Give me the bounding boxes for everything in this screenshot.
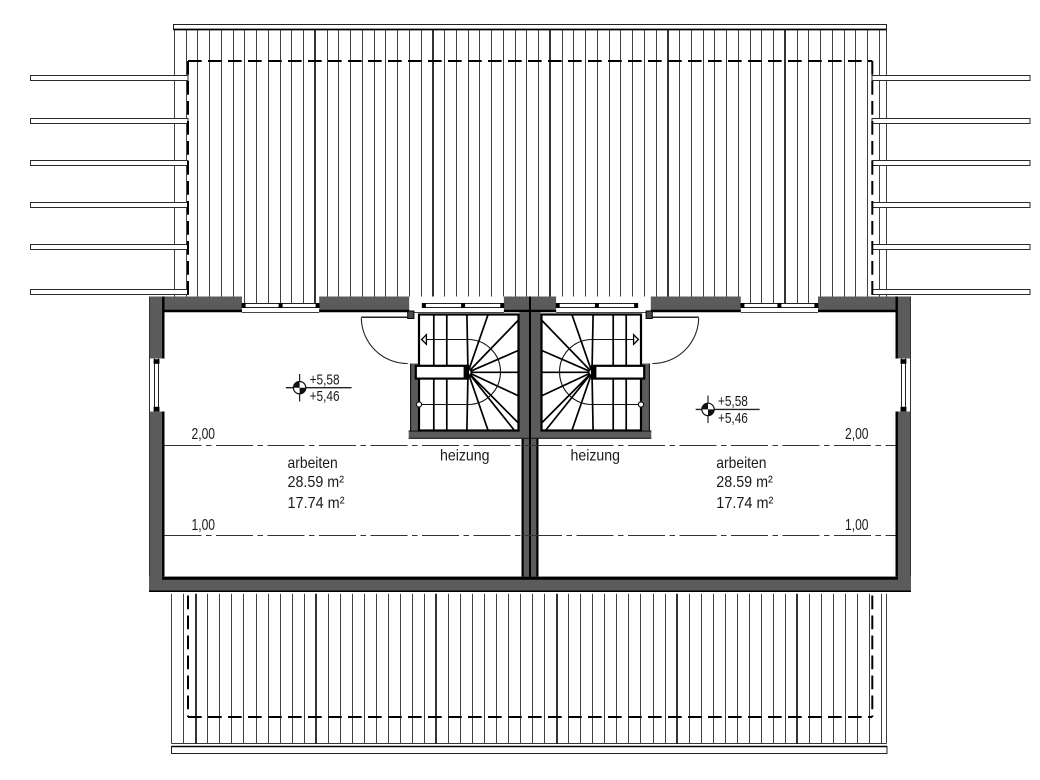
svg-text:heizung: heizung (440, 448, 490, 465)
svg-text:+5,46: +5,46 (310, 388, 340, 405)
svg-text:arbeiten: arbeiten (716, 455, 766, 472)
svg-text:+5,58: +5,58 (310, 371, 340, 388)
svg-text:28.59 m²: 28.59 m² (716, 474, 773, 491)
svg-text:+5,58: +5,58 (718, 393, 748, 410)
svg-text:1,00: 1,00 (845, 517, 869, 534)
svg-text:1,00: 1,00 (192, 517, 216, 534)
svg-text:28.59 m²: 28.59 m² (288, 474, 345, 491)
svg-text:2,00: 2,00 (192, 426, 216, 443)
svg-text:arbeiten: arbeiten (288, 455, 338, 472)
svg-text:17.74 m²: 17.74 m² (716, 495, 774, 512)
svg-text:+5,46: +5,46 (718, 410, 748, 427)
svg-text:heizung: heizung (571, 448, 621, 465)
svg-text:17.74 m²: 17.74 m² (288, 495, 346, 512)
svg-text:2,00: 2,00 (845, 426, 869, 443)
